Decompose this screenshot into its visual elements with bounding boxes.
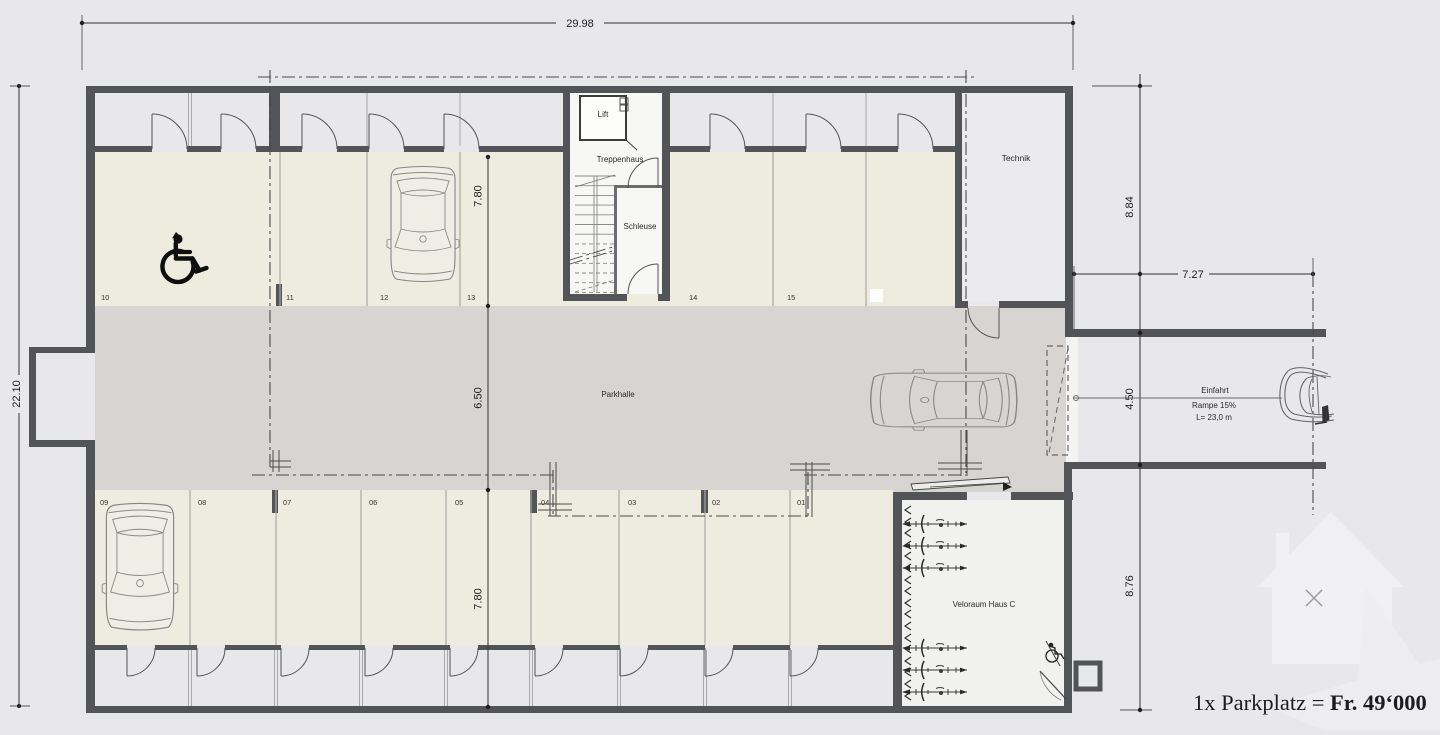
svg-text:08: 08 bbox=[198, 498, 206, 507]
svg-text:10: 10 bbox=[101, 293, 109, 302]
svg-text:Veloraum Haus C: Veloraum Haus C bbox=[953, 600, 1016, 609]
svg-text:07: 07 bbox=[283, 498, 291, 507]
svg-text:01: 01 bbox=[797, 498, 805, 507]
svg-text:7.27: 7.27 bbox=[1182, 269, 1203, 281]
svg-text:14: 14 bbox=[689, 293, 697, 302]
svg-text:06: 06 bbox=[369, 498, 377, 507]
svg-text:02: 02 bbox=[712, 498, 720, 507]
svg-text:Einfahrt: Einfahrt bbox=[1201, 386, 1229, 395]
svg-text:8.84: 8.84 bbox=[1124, 196, 1136, 217]
svg-text:Schleuse: Schleuse bbox=[624, 222, 657, 231]
svg-text:Technik: Technik bbox=[1002, 153, 1032, 163]
svg-text:Lift: Lift bbox=[598, 110, 609, 119]
svg-text:11: 11 bbox=[286, 293, 294, 302]
svg-text:15: 15 bbox=[787, 293, 795, 302]
svg-text:05: 05 bbox=[455, 498, 463, 507]
svg-text:29.98: 29.98 bbox=[566, 18, 594, 30]
svg-text:22.10: 22.10 bbox=[11, 380, 23, 408]
svg-text:13: 13 bbox=[467, 293, 475, 302]
svg-text:6.50: 6.50 bbox=[473, 387, 485, 408]
svg-text:7.80: 7.80 bbox=[473, 185, 485, 206]
svg-text:Rampe 15%: Rampe 15% bbox=[1192, 401, 1236, 410]
svg-text:L= 23,0 m: L= 23,0 m bbox=[1196, 413, 1232, 422]
svg-text:03: 03 bbox=[628, 498, 636, 507]
svg-text:4.50: 4.50 bbox=[1124, 388, 1136, 409]
svg-text:Treppenhaus: Treppenhaus bbox=[597, 155, 644, 164]
svg-text:7.80: 7.80 bbox=[473, 588, 485, 609]
svg-text:12: 12 bbox=[380, 293, 388, 302]
svg-text:09: 09 bbox=[100, 498, 108, 507]
svg-text:04: 04 bbox=[541, 498, 549, 507]
svg-text:1x Parkplatz = Fr. 49‘000: 1x Parkplatz = Fr. 49‘000 bbox=[1193, 690, 1427, 715]
svg-text:8.76: 8.76 bbox=[1124, 575, 1136, 596]
svg-text:Parkhalle: Parkhalle bbox=[601, 390, 635, 399]
